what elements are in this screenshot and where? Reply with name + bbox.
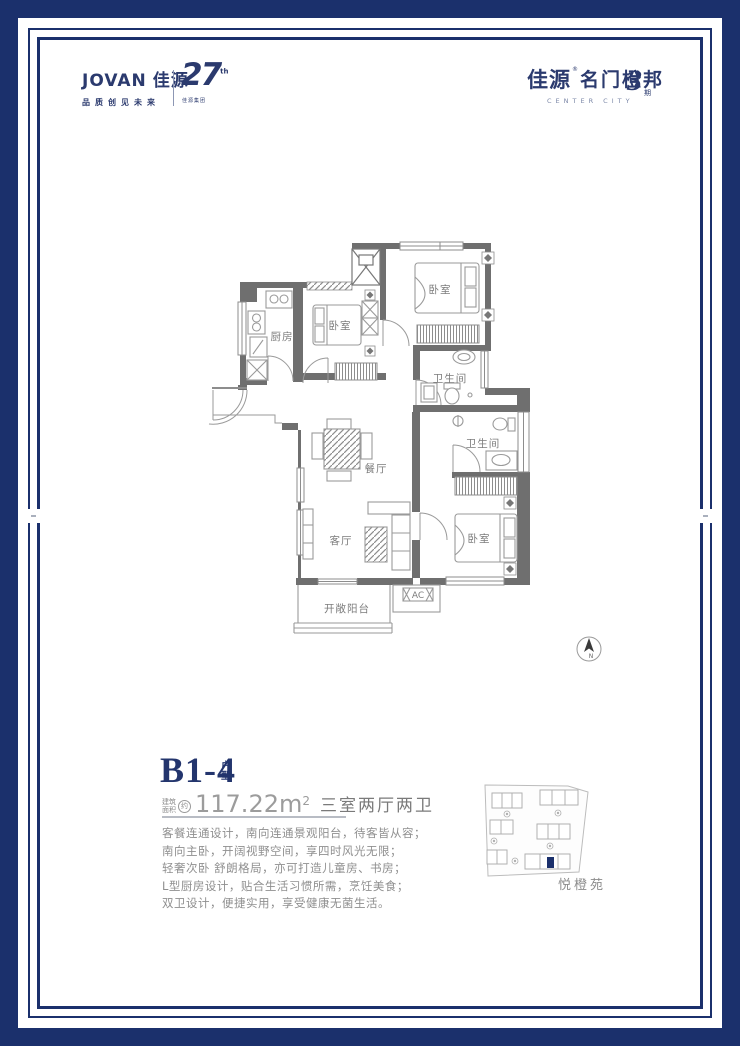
description-line: 双卫设计，便捷实用，享受健康无菌生活。 bbox=[162, 895, 442, 913]
label-ac: AC bbox=[412, 591, 424, 601]
project-logo: 佳源 ® 名门橙邦 CENTER CITY 3 期 bbox=[527, 64, 664, 105]
area-row: 建筑面积 约 117.22 m 2 三室两厅两卫 bbox=[162, 792, 434, 816]
right-registration-notch bbox=[697, 509, 715, 523]
floor-plan: 卧室 卧室 厨房 卫生间 卫生间 餐厅 客厅 卧室 开敞阳台 AC N bbox=[200, 225, 620, 665]
duct-shaft bbox=[352, 249, 380, 285]
jovan-brand-en: JOVAN bbox=[82, 71, 147, 91]
project-name: 名门橙邦 bbox=[580, 65, 664, 92]
corridor-highwindow bbox=[307, 282, 352, 290]
highlighted-building bbox=[547, 857, 554, 868]
unit-name-suffix: 户型 bbox=[221, 762, 231, 782]
logo-divider bbox=[173, 70, 174, 106]
phase-unit: 期 bbox=[644, 88, 651, 98]
anniversary-badge-subtext: 佳源集团 bbox=[182, 97, 206, 104]
label-balcony: 开敞阳台 bbox=[324, 602, 370, 615]
description-line: 南向主卧，开阔视野空间，享四时风光无限； bbox=[162, 843, 442, 861]
registered-mark: ® bbox=[572, 66, 578, 73]
label-bathroom-top: 卫生间 bbox=[433, 372, 468, 385]
area-approx-mark: 约 bbox=[178, 800, 191, 813]
label-dining: 餐厅 bbox=[365, 462, 388, 475]
sitemap-label: 悦橙苑 bbox=[558, 874, 606, 893]
compass-icon: N bbox=[577, 637, 601, 661]
label-bathroom-mid: 卫生间 bbox=[466, 437, 501, 450]
phase-number: 3 bbox=[627, 66, 642, 96]
left-registration-notch bbox=[25, 509, 43, 523]
anniversary-badge: 27th bbox=[181, 60, 228, 91]
area-value: 117.22 bbox=[195, 792, 279, 816]
unit-description: 客餐连通设计，南向连通景观阳台，待客皆从容； 南向主卧，开阔视野空间，享四时风光… bbox=[162, 825, 442, 913]
description-line: 轻奢次卧 舒朗格局，亦可打造儿童房、书房； bbox=[162, 860, 442, 878]
description-line: 客餐连通设计，南向连通景观阳台，待客皆从容； bbox=[162, 825, 442, 843]
area-unit: m bbox=[279, 792, 302, 816]
dining-set bbox=[312, 419, 372, 481]
area-label: 建筑面积 bbox=[162, 798, 176, 814]
label-kitchen: 厨房 bbox=[271, 330, 294, 343]
layout-text: 三室两厅两卫 bbox=[320, 798, 434, 815]
living-set bbox=[303, 502, 410, 570]
area-superscript: 2 bbox=[302, 795, 310, 807]
label-living: 客厅 bbox=[330, 534, 353, 547]
description-line: L型厨房设计，贴合生活习惯所需，烹饪美食； bbox=[162, 878, 442, 896]
poster-page: JOVAN佳源 品质创见未来 27th 佳源集团 佳源 ® 名门橙邦 CENTE… bbox=[0, 0, 740, 1046]
label-bedroom-top: 卧室 bbox=[429, 283, 452, 296]
project-brand: 佳源 bbox=[527, 64, 571, 94]
wardrobe-x bbox=[362, 301, 378, 335]
label-bedroom-mid: 卧室 bbox=[329, 319, 352, 332]
title-divider bbox=[162, 816, 346, 818]
svg-text:N: N bbox=[589, 653, 594, 660]
label-bedroom-bottom: 卧室 bbox=[468, 532, 491, 545]
project-subtitle: CENTER CITY bbox=[547, 97, 664, 105]
